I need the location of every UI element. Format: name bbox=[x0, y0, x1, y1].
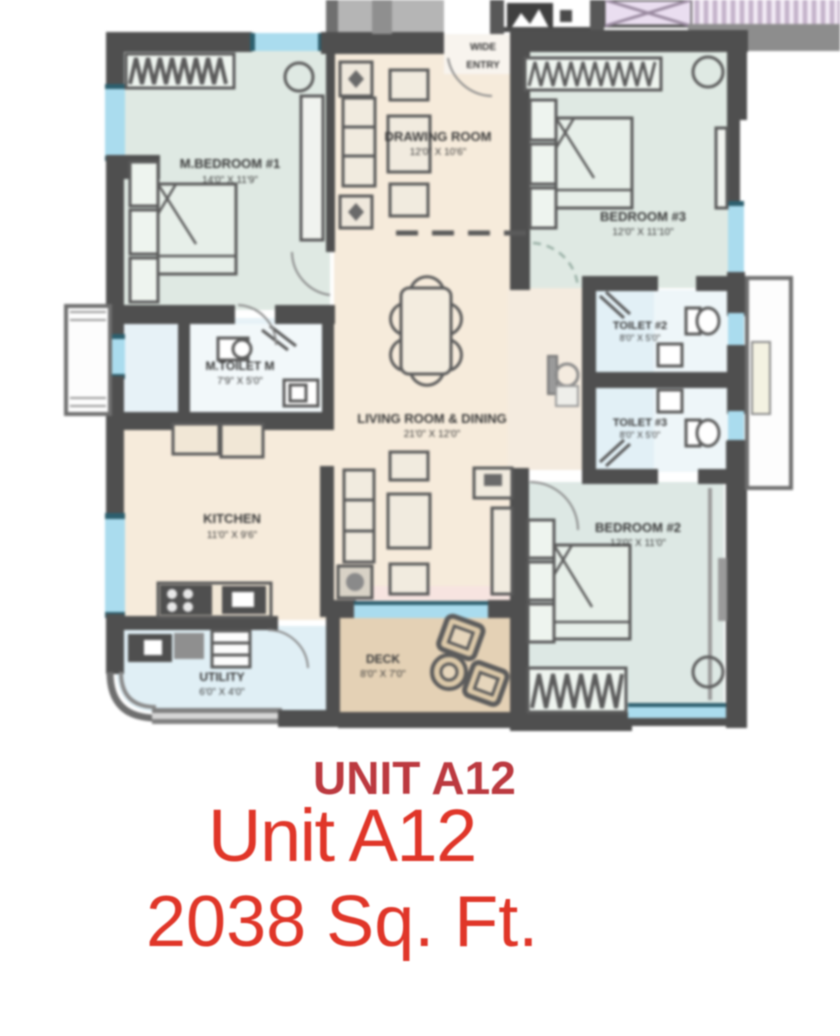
svg-text:12'0" X 11'10": 12'0" X 11'10" bbox=[612, 227, 674, 238]
svg-text:LIVING ROOM & DINING: LIVING ROOM & DINING bbox=[357, 411, 507, 426]
svg-text:11'0" X 9'6": 11'0" X 9'6" bbox=[207, 530, 258, 541]
svg-text:UTILITY: UTILITY bbox=[199, 670, 244, 684]
svg-text:8'0" X 5'0": 8'0" X 5'0" bbox=[620, 333, 661, 343]
svg-text:BEDROOM #2: BEDROOM #2 bbox=[595, 520, 681, 535]
svg-text:6'0" X 4'0": 6'0" X 4'0" bbox=[199, 687, 245, 698]
svg-text:12'0" X 11'0": 12'0" X 11'0" bbox=[610, 538, 666, 549]
svg-text:M.TOILET M: M.TOILET M bbox=[205, 359, 274, 373]
svg-text:WIDE: WIDE bbox=[470, 42, 496, 53]
svg-text:KITCHEN: KITCHEN bbox=[203, 511, 261, 526]
svg-text:14'0" X 11'9": 14'0" X 11'9" bbox=[202, 175, 258, 186]
svg-text:TOILET #2: TOILET #2 bbox=[613, 320, 667, 332]
svg-text:BEDROOM #3: BEDROOM #3 bbox=[600, 209, 686, 224]
svg-text:7'9" X 5'0": 7'9" X 5'0" bbox=[217, 376, 263, 387]
svg-text:M.BEDROOM #1: M.BEDROOM #1 bbox=[180, 156, 280, 171]
svg-text:8'0" X 5'0": 8'0" X 5'0" bbox=[620, 430, 661, 440]
svg-text:DECK: DECK bbox=[366, 652, 400, 666]
svg-text:21'0" X 12'0": 21'0" X 12'0" bbox=[404, 429, 461, 440]
svg-text:ENTRY: ENTRY bbox=[466, 60, 500, 71]
svg-text:8'0" X 7'0": 8'0" X 7'0" bbox=[360, 669, 406, 680]
svg-text:DRAWING ROOM: DRAWING ROOM bbox=[385, 129, 492, 144]
svg-text:12'0" X 10'6": 12'0" X 10'6" bbox=[410, 147, 467, 158]
svg-text:TOILET #3: TOILET #3 bbox=[613, 417, 667, 429]
